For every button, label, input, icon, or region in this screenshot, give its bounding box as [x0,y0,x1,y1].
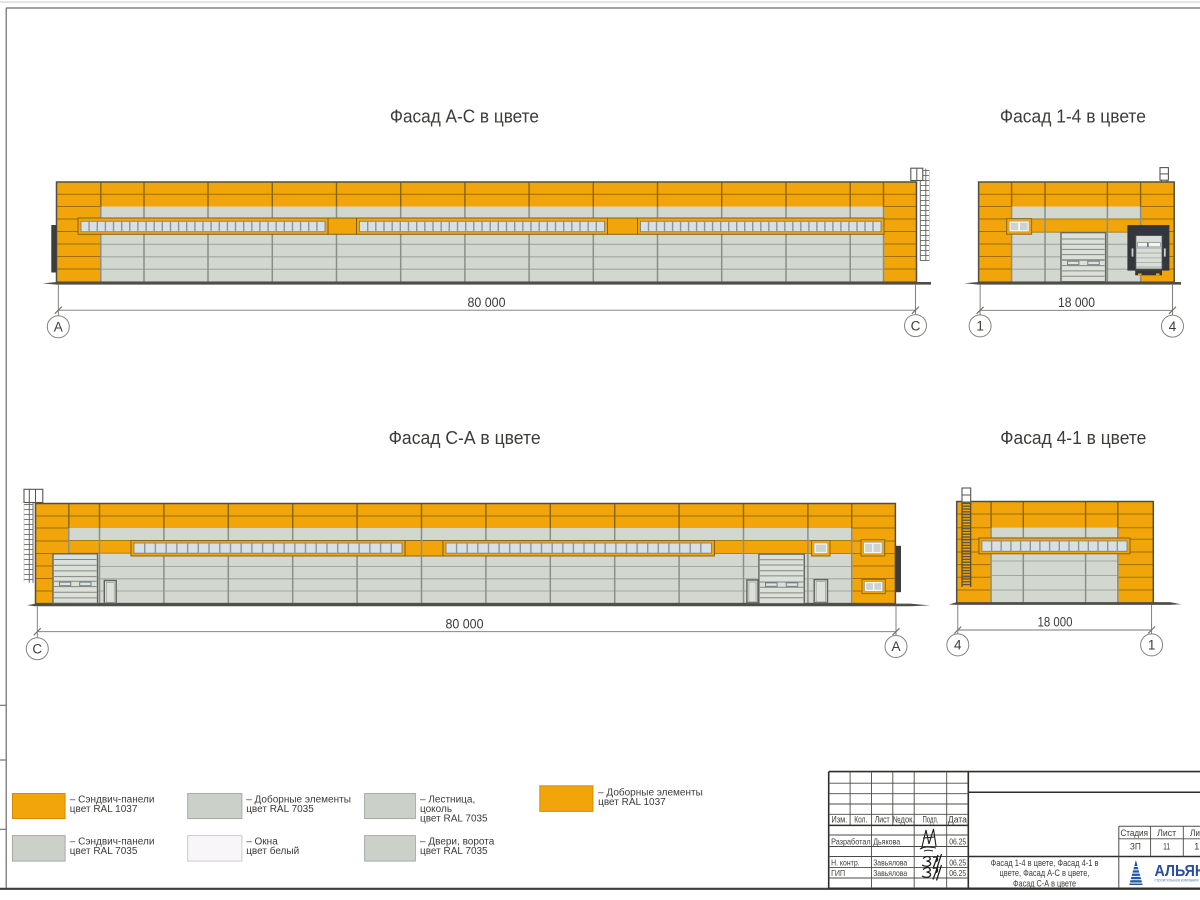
svg-text:80 000: 80 000 [468,295,506,310]
svg-text:Фасад 4-1 в цвете: Фасад 4-1 в цвете [1000,427,1146,448]
svg-text:4: 4 [954,638,962,653]
svg-text:цвет RAL 7035: цвет RAL 7035 [70,846,138,857]
svg-text:06.25: 06.25 [949,858,966,868]
svg-text:Кол.: Кол. [854,815,867,825]
svg-text:ЗП: ЗП [1130,842,1141,853]
svg-text:Фасад С-А в цвете: Фасад С-А в цвете [389,427,541,448]
svg-text:06.25: 06.25 [949,868,966,878]
svg-text:Завьялова: Завьялова [873,868,907,878]
svg-text:А: А [891,639,900,654]
svg-text:№док.: №док. [893,815,915,825]
svg-text:А: А [54,320,63,335]
svg-text:цвете, Фасад А-С в цвете,: цвете, Фасад А-С в цвете, [1000,868,1090,878]
svg-text:Изм.: Изм. [831,815,847,825]
svg-text:цвет белый: цвет белый [246,845,299,857]
svg-text:Разработал: Разработал [831,837,871,847]
svg-text:ГИП: ГИП [831,868,845,878]
svg-text:Лист: Лист [875,815,890,825]
svg-text:Подп.: Подп. [923,815,939,825]
svg-text:80 000: 80 000 [446,617,484,632]
svg-text:цвет RAL 1037: цвет RAL 1037 [598,797,666,808]
svg-text:18 000: 18 000 [1038,615,1073,630]
svg-text:цвет RAL 7035: цвет RAL 7035 [420,846,488,857]
svg-text:Фасад 1-4 в цвете: Фасад 1-4 в цвете [1000,106,1146,127]
svg-text:строительная компания: строительная компания [1155,877,1200,882]
svg-text:С: С [911,318,921,333]
svg-text:1: 1 [976,319,984,334]
svg-text:Н. контр.: Н. контр. [831,858,860,868]
svg-text:Фасад С-А в цвете: Фасад С-А в цвете [1013,878,1076,888]
svg-text:цвет RAL 7035: цвет RAL 7035 [420,813,488,824]
svg-text:Стадия: Стадия [1120,828,1148,838]
svg-text:С: С [32,641,42,656]
svg-text:Лис: Лис [1190,828,1200,838]
svg-text:Фасад 1-4 в цвете, Фасад 4-1 в: Фасад 1-4 в цвете, Фасад 4-1 в [991,858,1099,868]
svg-text:4: 4 [1169,319,1177,334]
svg-text:06.25: 06.25 [949,837,966,847]
svg-text:Дата: Дата [948,815,967,825]
svg-text:цвет RAL 1037: цвет RAL 1037 [70,804,138,815]
svg-text:Завьялова: Завьялова [873,858,907,868]
svg-text:цвет RAL 7035: цвет RAL 7035 [246,804,314,815]
svg-text:Фасад А-С в цвете: Фасад А-С в цвете [390,106,539,127]
svg-text:Дьякова: Дьякова [873,837,900,847]
svg-text:1: 1 [1148,638,1156,653]
svg-text:1: 1 [1194,842,1199,853]
svg-text:18 000: 18 000 [1058,295,1095,310]
svg-text:Лист: Лист [1157,828,1176,838]
svg-text:11: 11 [1163,842,1170,853]
